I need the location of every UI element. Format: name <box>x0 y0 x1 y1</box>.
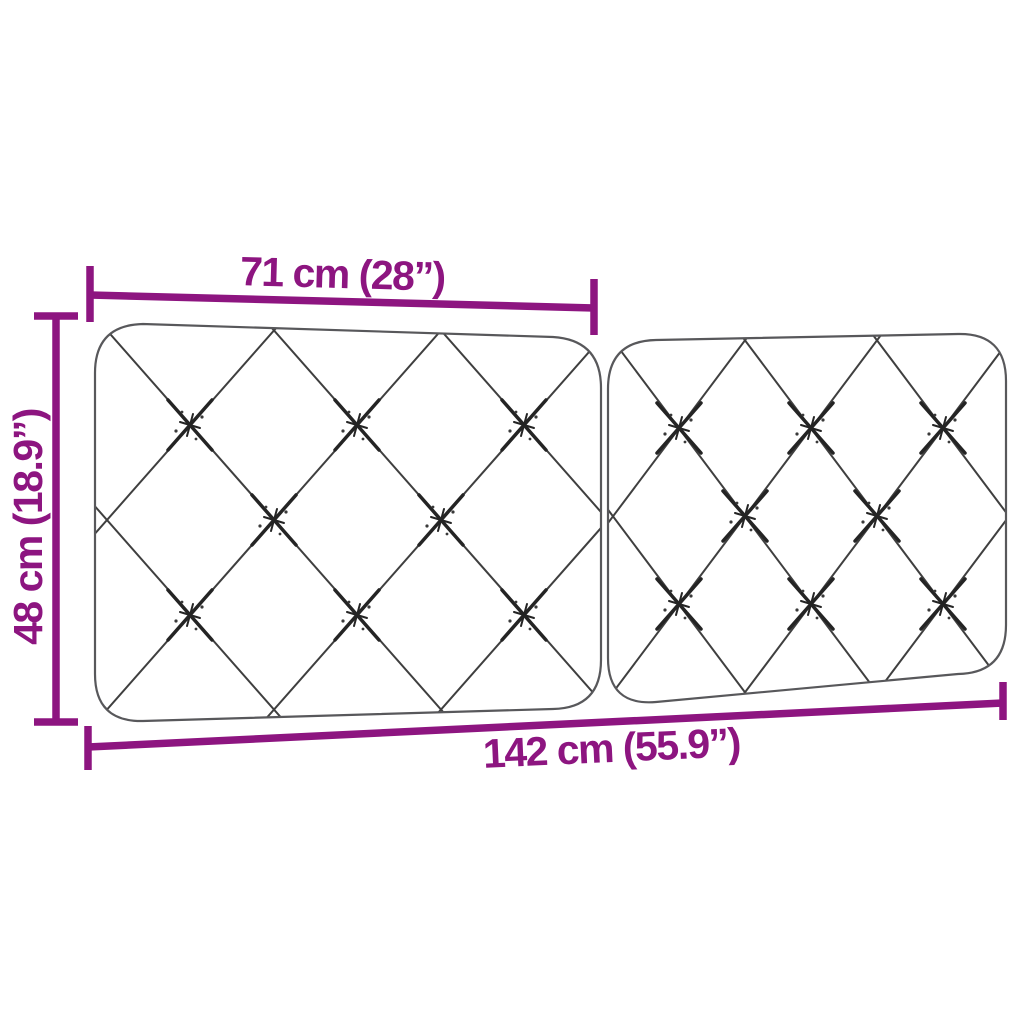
product-dimension-diagram: 71 cm (28”) 48 cm (18.9”) 142 cm (55.9”) <box>0 0 1024 1024</box>
tuft-button <box>657 579 701 629</box>
right-cushion-outline <box>608 334 1006 702</box>
left-cushion-outline <box>95 324 601 721</box>
top-width-dimension: 71 cm (28”) <box>90 248 594 335</box>
top-width-label: 71 cm (28”) <box>240 248 446 300</box>
height-dimension: 48 cm (18.9”) <box>5 316 78 722</box>
tuft-button <box>335 590 379 640</box>
left-panel-buttons <box>168 400 546 640</box>
tuft-button <box>789 403 833 453</box>
tuft-button <box>168 590 212 640</box>
tuft-button <box>723 491 767 541</box>
total-width-dimension: 142 cm (55.9”) <box>88 682 1003 777</box>
tuft-button <box>789 579 833 629</box>
tuft-button <box>252 495 296 545</box>
left-panel-tufting <box>0 310 960 730</box>
diagram-canvas: 71 cm (28”) 48 cm (18.9”) 142 cm (55.9”) <box>0 0 1024 1024</box>
tuft-seam-line <box>590 310 960 730</box>
tuft-button <box>335 400 379 450</box>
tuft-button <box>168 400 212 450</box>
height-label: 48 cm (18.9”) <box>5 409 51 645</box>
tuft-button <box>502 590 546 640</box>
tuft-button <box>855 491 899 541</box>
tuft-seam-line <box>462 315 762 715</box>
tuft-button <box>502 400 546 450</box>
tuft-button <box>419 495 463 545</box>
cushion-drawing <box>0 310 1024 730</box>
right-panel-buttons <box>657 403 965 629</box>
tuft-button <box>657 403 701 453</box>
tuft-button <box>921 579 965 629</box>
dimension-annotations: 71 cm (28”) 48 cm (18.9”) 142 cm (55.9”) <box>5 248 1003 777</box>
tuft-button <box>921 403 965 453</box>
tuft-seam-line <box>464 315 764 715</box>
